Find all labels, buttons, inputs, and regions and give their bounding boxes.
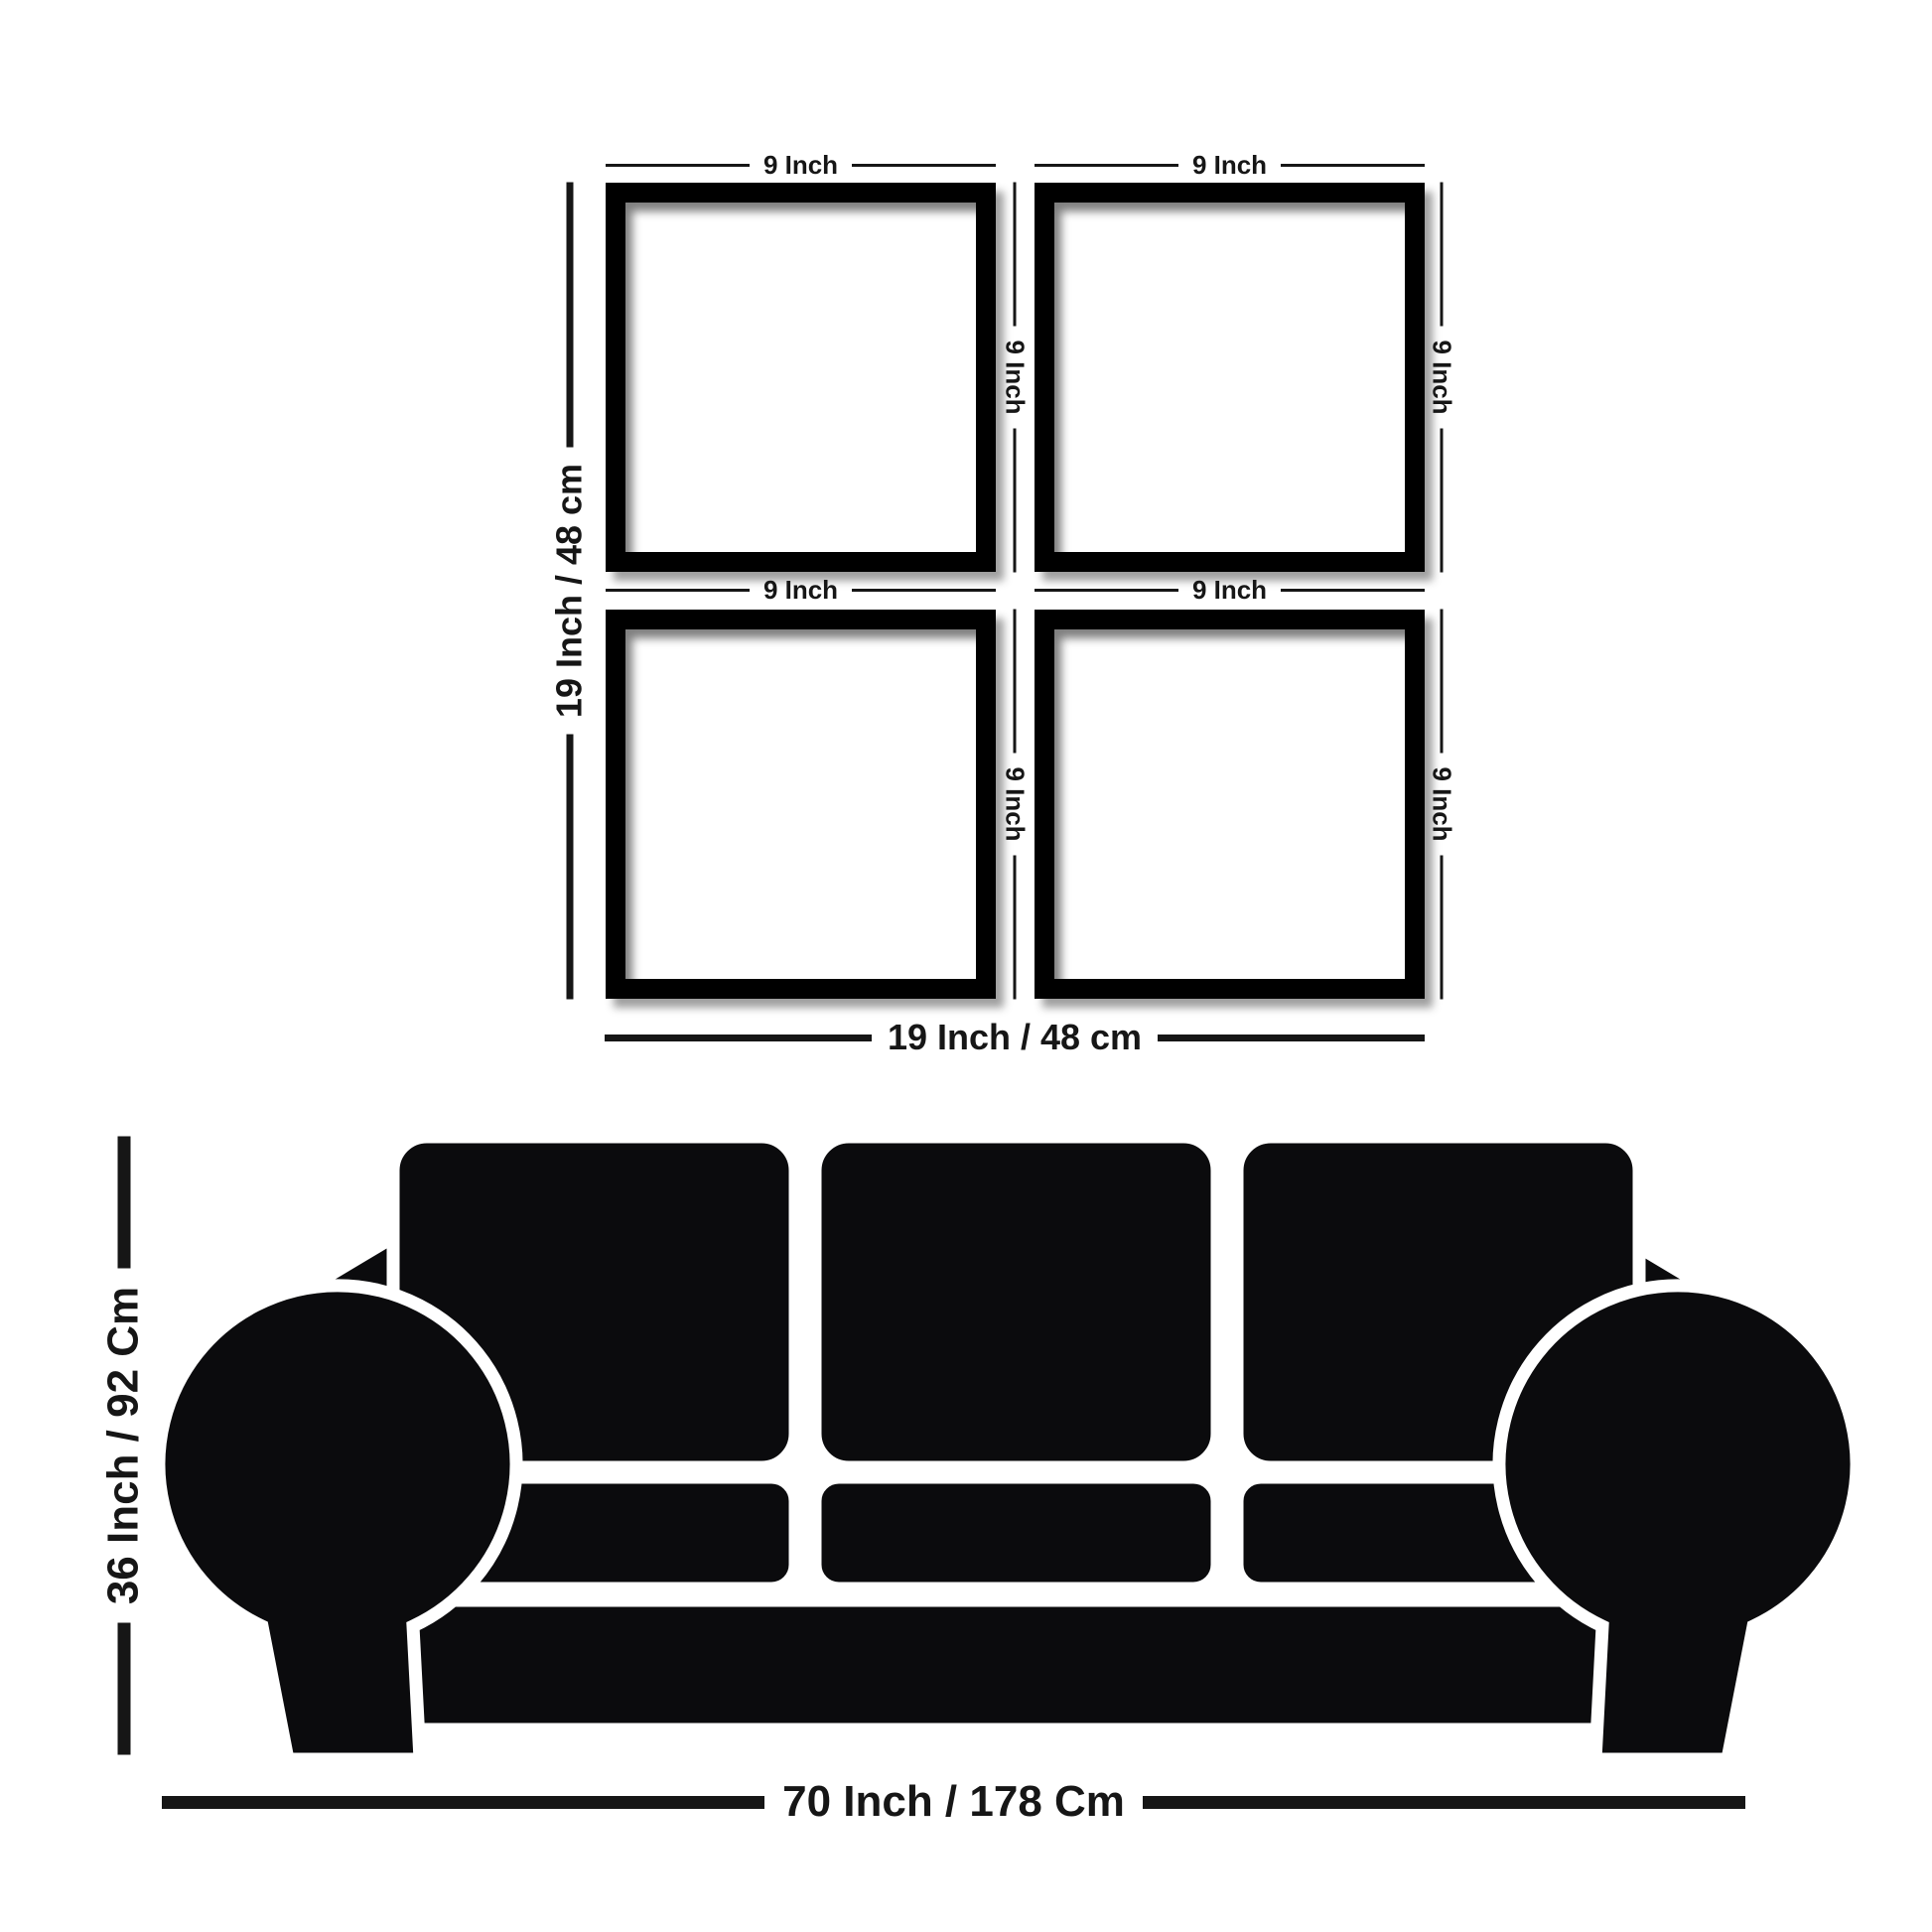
dimension-line	[1441, 429, 1444, 573]
dimension-line	[162, 1796, 764, 1809]
dimension-line	[606, 164, 750, 167]
dim-frame-height-bottom-right: 9 Inch	[1423, 610, 1462, 1000]
dimension-line	[1035, 164, 1178, 167]
dimension-line	[1014, 429, 1017, 573]
dim-frame-height-top-right: 9 Inch	[1423, 183, 1462, 573]
dimension-line	[1158, 1035, 1425, 1041]
dim-sofa-height: 36 Inch / 92 Cm	[96, 1137, 152, 1755]
dimension-label: 9 Inch	[1192, 575, 1267, 606]
dim-frame-width-bottom-right: 9 Inch	[1035, 570, 1425, 610]
dimension-line	[117, 1136, 130, 1268]
frame-top-right	[1035, 183, 1425, 572]
dimension-label: 9 Inch	[763, 575, 838, 606]
dim-frame-width-bottom-left: 9 Inch	[606, 570, 996, 610]
sofa-base	[399, 1600, 1616, 1729]
frame-bottom-left	[606, 610, 996, 999]
dim-frames-overall-height: 19 Inch / 48 cm	[546, 183, 594, 1000]
dim-frames-overall-width: 19 Inch / 48 cm	[605, 1014, 1425, 1061]
dimension-line	[1014, 856, 1017, 1000]
dimension-line	[1441, 856, 1444, 1000]
dimension-label: 9 Inch	[1192, 150, 1267, 181]
dimension-line	[1441, 610, 1444, 754]
dimension-label: 9 Inch	[1000, 766, 1031, 841]
dimension-label: 9 Inch	[1000, 340, 1031, 414]
dimension-line	[1281, 164, 1425, 167]
dimension-label: 9 Inch	[1427, 340, 1457, 414]
dimension-line	[852, 164, 996, 167]
sofa-seat-cushion-middle	[815, 1477, 1217, 1588]
product-dimension-diagram: { "frames_panel": { "frame_width_labels"…	[0, 0, 1932, 1932]
dimension-label: 9 Inch	[763, 150, 838, 181]
dimension-line	[1143, 1796, 1745, 1809]
frame-top-left	[606, 183, 996, 572]
dimension-label: 36 Inch / 92 Cm	[99, 1287, 149, 1604]
sofa-silhouette	[149, 1112, 1866, 1787]
dimension-line	[117, 1622, 130, 1754]
dim-frame-height-bottom-left: 9 Inch	[996, 610, 1035, 1000]
dimension-line	[1014, 183, 1017, 327]
sofa-icon	[149, 1112, 1866, 1787]
dimension-line	[1035, 589, 1178, 592]
dim-frame-height-top-left: 9 Inch	[996, 183, 1035, 573]
sofa-back-cushion-middle	[815, 1137, 1217, 1467]
dimension-label: 19 Inch / 48 cm	[888, 1017, 1142, 1058]
dimension-line	[606, 589, 750, 592]
dimension-label: 19 Inch / 48 cm	[549, 464, 591, 718]
dimension-label: 9 Inch	[1427, 766, 1457, 841]
dimension-line	[605, 1035, 872, 1041]
dimension-label: 70 Inch / 178 Cm	[782, 1777, 1125, 1827]
dimension-line	[1014, 610, 1017, 754]
dimension-line	[566, 182, 573, 447]
dim-frame-width-top-left: 9 Inch	[606, 145, 996, 185]
dimension-line	[1441, 183, 1444, 327]
dimension-line	[852, 589, 996, 592]
dim-frame-width-top-right: 9 Inch	[1035, 145, 1425, 185]
frame-bottom-right	[1035, 610, 1425, 999]
dimension-line	[1281, 589, 1425, 592]
dimension-line	[566, 734, 573, 999]
dim-sofa-width: 70 Inch / 178 Cm	[162, 1774, 1745, 1830]
